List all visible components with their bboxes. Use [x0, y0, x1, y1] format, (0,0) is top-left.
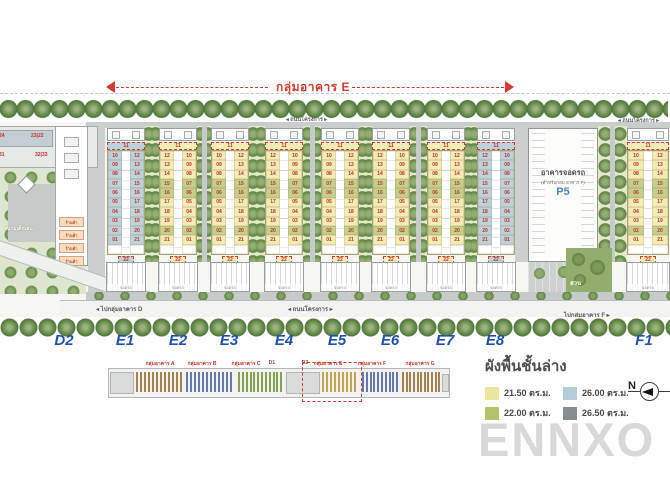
minimap-bar	[417, 372, 419, 392]
roof-unit	[164, 131, 172, 139]
lobby-room	[64, 137, 79, 147]
unit-cell: 21	[373, 235, 387, 244]
unit-cell: 13	[160, 160, 174, 169]
minimap-bar	[257, 372, 259, 392]
compass-needle-icon	[642, 388, 653, 396]
minimap-facility-left	[110, 372, 134, 394]
drive-lane	[515, 126, 528, 262]
unit-cell: 10	[428, 151, 442, 160]
tree-corridor	[145, 126, 159, 262]
minimap-bar	[214, 372, 216, 392]
unit-cell: 10	[628, 151, 644, 160]
unit-cell: 12	[478, 151, 492, 160]
minimap-bar	[202, 372, 204, 392]
unit-cell: 21	[266, 235, 280, 244]
minimap-section-label: กลุ่มอาคาร B	[187, 360, 216, 368]
minimap-bar	[402, 372, 404, 392]
unit-number: 24	[0, 133, 5, 139]
group-marker-e2: E2	[169, 332, 187, 349]
unit-columns: 1213141516171819202110090807060504030201	[477, 150, 515, 255]
unit-cell: 16	[130, 188, 144, 197]
road-label-to-d: ◂ ไปกลุ่มอาคาร D	[96, 304, 142, 314]
strip-roof-block	[477, 128, 515, 141]
strip-roof-block	[627, 128, 669, 141]
unit-cell: 04	[212, 207, 226, 216]
unit-cell: 02	[212, 226, 226, 235]
unit-columns: 1009080706050403020112131415161718192021	[211, 150, 249, 255]
unit-cell: 20	[373, 226, 387, 235]
unit-cell-11: 11	[321, 142, 359, 150]
unit-cell: 01	[322, 235, 336, 244]
unit-cell: 15	[652, 179, 668, 188]
building-strip-e7: 1110090807060504030201121314151617181920…	[427, 128, 465, 264]
minimap-bar	[222, 372, 224, 392]
group-marker-d2: D2	[54, 332, 73, 349]
unit-cell: 20	[450, 226, 464, 235]
garage-label: จอดรถ	[321, 284, 359, 291]
unit-cell: 13	[266, 160, 280, 169]
unit-column-left: 10090807060504030201	[212, 151, 226, 254]
unit-cell: 12	[130, 151, 144, 160]
unit-cell: 13	[652, 160, 668, 169]
minimap-bar	[366, 372, 368, 392]
minimap-bar	[238, 372, 240, 392]
unit-cell: 05	[428, 198, 442, 207]
unit-column-right: 10090807060504030201	[395, 151, 409, 254]
unit-cell: 14	[450, 170, 464, 179]
minimap-bar	[206, 372, 208, 392]
unit-column-left: 10090807060504030201	[108, 151, 122, 254]
stair-cell	[395, 245, 409, 254]
unit-cell: 09	[288, 160, 302, 169]
unit-columns: 1009080706050403020112131415161718192021	[107, 150, 145, 255]
unit-cell: 19	[266, 217, 280, 226]
unit-cell: 06	[500, 188, 514, 197]
minimap-bar	[370, 372, 372, 392]
minimap-bar	[164, 372, 166, 392]
unit-cell: 15	[373, 179, 387, 188]
unit-column-right: 10090807060504030201	[500, 151, 514, 254]
minimap-bar	[392, 372, 394, 392]
unit-cell: 10	[108, 151, 122, 160]
garage-label: จอดรถ	[627, 284, 669, 291]
unit-cell: 14	[160, 170, 174, 179]
unit-cell: 19	[450, 217, 464, 226]
minimap-bar	[140, 372, 142, 392]
minimap-section-label: กลุ่มอาคาร F	[358, 360, 386, 368]
unit-number: 32|33	[35, 152, 48, 158]
unit-cell: 14	[266, 170, 280, 179]
tree-row-top	[0, 99, 668, 119]
minimap-bar	[381, 372, 383, 392]
unit-cell: 04	[428, 207, 442, 216]
minimap-bar	[226, 372, 228, 392]
unit-cell: 01	[628, 235, 644, 244]
unit-cell: 05	[212, 198, 226, 207]
unit-cell: 08	[108, 170, 122, 179]
unit-cell: 19	[373, 217, 387, 226]
unit-cell-11: 11	[265, 142, 303, 150]
sidewalk-trees	[86, 292, 670, 300]
garage-block-e4: จอดรถ	[264, 262, 304, 292]
minimap-bar	[420, 372, 422, 392]
minimap-bar	[273, 372, 275, 392]
corridor-spine	[387, 151, 395, 254]
minimap-bar	[377, 372, 379, 392]
unit-cell: 18	[652, 207, 668, 216]
unit-cell: 18	[450, 207, 464, 216]
minimap-section-label: กลุ่มอาคาร C	[231, 360, 260, 368]
unit-cell: 09	[182, 160, 196, 169]
minimap-bar	[438, 372, 440, 392]
unit-cell: 04	[628, 207, 644, 216]
minimap-bar	[152, 372, 154, 392]
unit-cell: 16	[478, 188, 492, 197]
unit-cell: 08	[500, 170, 514, 179]
unit-cell: 06	[212, 188, 226, 197]
minimap-bar	[385, 372, 387, 392]
unit-cell: 10	[182, 151, 196, 160]
shop-unit: ร้านค้า	[59, 230, 84, 240]
minimap-bar	[424, 372, 426, 392]
unit-cell: 14	[652, 170, 668, 179]
roof-unit	[502, 131, 510, 139]
corridor-spine	[280, 151, 288, 254]
strip-roof-block	[372, 128, 410, 141]
minimap-bar	[373, 372, 375, 392]
unit-cell: 01	[212, 235, 226, 244]
group-marker-e8: E8	[486, 332, 504, 349]
unit-cell: 17	[373, 198, 387, 207]
unit-column-left: 10090807060504030201	[428, 151, 442, 254]
unit-cell: 18	[478, 207, 492, 216]
minimap-bar	[194, 372, 196, 392]
playground-label: สนามเด็กเล่น	[4, 225, 33, 233]
unit-cell: 14	[344, 170, 358, 179]
arrowhead-right-icon	[505, 81, 514, 93]
minimap-section-label: กลุ่มอาคาร A	[145, 360, 174, 368]
strip-roof-block	[107, 128, 145, 141]
roof-unit	[397, 131, 405, 139]
unit-columns: 1213141516171819202110090807060504030201	[265, 150, 303, 255]
boundary-dashed-line	[0, 93, 670, 94]
unit-cell: 20	[652, 226, 668, 235]
unit-cell: 14	[478, 170, 492, 179]
minimap-bar	[435, 372, 437, 392]
unit-cell: 20	[130, 226, 144, 235]
minimap-bar	[186, 372, 188, 392]
minimap-bar	[250, 372, 252, 392]
unit-cell: 17	[450, 198, 464, 207]
unit-cell: 01	[182, 235, 196, 244]
stair-cell	[478, 245, 492, 254]
stair-cell	[212, 245, 226, 254]
unit-cell: 21	[450, 235, 464, 244]
building-strip-e1: 1110090807060504030201121314151617181920…	[107, 128, 145, 264]
unit-cell: 02	[182, 226, 196, 235]
unit-cell: 21	[160, 235, 174, 244]
group-marker-e5: E5	[328, 332, 346, 349]
minimap-bar	[253, 372, 255, 392]
lobby-room	[64, 169, 79, 179]
strip-roof-block	[265, 128, 303, 141]
unit-cell: 07	[395, 179, 409, 188]
minimap-bar	[144, 372, 146, 392]
minimap-bar	[242, 372, 244, 392]
unit-cell: 14	[130, 170, 144, 179]
unit-cell: 07	[288, 179, 302, 188]
unit-cell: 02	[395, 226, 409, 235]
garage-block-e6: จอดรถ	[371, 262, 411, 292]
unit-column-right: 12131415161718192021	[234, 151, 248, 254]
garage-block-e3: จอดรถ	[210, 262, 250, 292]
unit-cell: 03	[288, 217, 302, 226]
arrow-dash-right	[352, 87, 504, 88]
unit-cell: 19	[160, 217, 174, 226]
unit-cell: 05	[288, 198, 302, 207]
unit-cell: 03	[395, 217, 409, 226]
unit-cell: 16	[450, 188, 464, 197]
roof-unit	[112, 131, 120, 139]
unit-cell: 17	[130, 198, 144, 207]
plaza	[8, 184, 56, 242]
building-strip-e5: 1110090807060504030201121314151617181920…	[321, 128, 359, 264]
overview-minimap: กลุ่มอาคาร Aกลุ่มอาคาร Bกลุ่มอาคาร CD1D2…	[106, 360, 452, 406]
unit-cell: 21	[478, 235, 492, 244]
unit-cell: 13	[373, 160, 387, 169]
unit-cell: 06	[108, 188, 122, 197]
unit-cell: 17	[478, 198, 492, 207]
legend-title: ผังพื้นชั้นล่าง	[485, 354, 645, 378]
minimap-highlight-box	[302, 362, 362, 402]
unit-cell: 03	[182, 217, 196, 226]
corridor-spine	[174, 151, 182, 254]
arrowhead-left-icon	[106, 81, 115, 93]
plan-area: สนามเด็กเล่น 2423|2221|203132|3334 ร้านค…	[0, 122, 670, 318]
unit-cell: 02	[108, 226, 122, 235]
unit-cell: 12	[234, 151, 248, 160]
garage-label: จอดรถ	[107, 284, 145, 291]
drive-lane	[202, 126, 207, 262]
unit-cell: 09	[395, 160, 409, 169]
unit-cell: 12	[450, 151, 464, 160]
minimap-bar	[261, 372, 263, 392]
stair-cell	[288, 245, 302, 254]
tree-corridor	[197, 126, 211, 262]
minimap-bar	[172, 372, 174, 392]
corridor-spine	[492, 151, 500, 254]
unit-columns: 1213141516171819202110090807060504030201	[372, 150, 410, 255]
unit-cell: 08	[182, 170, 196, 179]
garage-label: จอดรถ	[427, 284, 465, 291]
garage-block-e2: จอดรถ	[158, 262, 198, 292]
unit-column-right: 12131415161718192021	[652, 151, 668, 254]
unit-cell: 20	[266, 226, 280, 235]
unit-cell-11: 11	[627, 142, 669, 150]
minimap-bar	[160, 372, 162, 392]
unit-cell: 16	[344, 188, 358, 197]
group-marker-e6: E6	[381, 332, 399, 349]
unit-columns: 1009080706050403020112131415161718192021	[321, 150, 359, 255]
garage-label: จอดรถ	[211, 284, 249, 291]
unit-cell: 02	[288, 226, 302, 235]
unit-cell: 10	[395, 151, 409, 160]
swatch-21-50	[485, 387, 499, 400]
unit-cell: 13	[478, 160, 492, 169]
unit-cell: 13	[130, 160, 144, 169]
minimap-bar	[246, 372, 248, 392]
unit-cell: 09	[108, 160, 122, 169]
tree-corridor	[410, 126, 427, 262]
garage-label: จอดรถ	[265, 284, 303, 291]
unit-cell-11: 11	[159, 142, 197, 150]
unit-cell: 15	[344, 179, 358, 188]
minimap-section-label: กลุ่มอาคาร G	[405, 360, 434, 368]
unit-cell: 16	[160, 188, 174, 197]
unit-cell: 09	[628, 160, 644, 169]
building-strip-e6: 1112131415161718192021100908070605040302…	[372, 128, 410, 264]
garden-park: สวน	[566, 248, 612, 294]
unit-cell: 01	[395, 235, 409, 244]
minimap-bar	[156, 372, 158, 392]
stair-cell	[234, 245, 248, 254]
tree-corridor	[598, 126, 627, 262]
unit-cell: 20	[234, 226, 248, 235]
parking-building-p5: อาคารจอดรถ (สำหรับกลุ่ม อาคาร F) P5	[528, 128, 598, 262]
stair-cell	[108, 245, 122, 254]
unit-cell: 12	[160, 151, 174, 160]
unit-column-left: 12131415161718192021	[373, 151, 387, 254]
tree-corridor	[465, 126, 477, 262]
site-plan-canvas: กลุ่มอาคาร E ◂ ถนนโครงการ ▸ ◂ ถนนโครงการ…	[0, 0, 670, 482]
minimap-bar	[176, 372, 178, 392]
unit-cell: 19	[652, 217, 668, 226]
unit-cell: 07	[500, 179, 514, 188]
unit-cell: 18	[344, 207, 358, 216]
unit-column-left: 10090807060504030201	[628, 151, 644, 254]
unit-cell: 04	[108, 207, 122, 216]
minimap-bar	[180, 372, 182, 392]
minimap-bar	[280, 372, 282, 392]
road-label-project: ◂ ถนนโครงการ ▸	[288, 304, 333, 314]
unit-cell: 18	[130, 207, 144, 216]
roof-unit	[377, 131, 385, 139]
unit-cell: 16	[234, 188, 248, 197]
compass-north-label: N	[628, 380, 636, 392]
stair-cell	[322, 245, 336, 254]
unit-cell: 07	[212, 179, 226, 188]
minimap-bar	[198, 372, 200, 392]
unit-cell: 12	[344, 151, 358, 160]
strip-roof-block	[159, 128, 197, 141]
unit-cell: 10	[212, 151, 226, 160]
garage-block-e1: จอดรถ	[106, 262, 146, 292]
minimap-bar	[218, 372, 220, 392]
unit-cell: 21	[652, 235, 668, 244]
minimap-bar	[210, 372, 212, 392]
minimap-facility-right	[442, 374, 449, 392]
minimap-bar	[427, 372, 429, 392]
unit-cell: 04	[395, 207, 409, 216]
minimap-bar	[168, 372, 170, 392]
unit-cell: 18	[160, 207, 174, 216]
unit-cell-11: 11	[477, 142, 515, 150]
strip-roof-block	[427, 128, 465, 141]
corridor-spine	[644, 151, 652, 254]
unit-cell: 21	[130, 235, 144, 244]
unit-cell: 10	[322, 151, 336, 160]
unit-cell: 14	[234, 170, 248, 179]
park-label: สวน	[570, 278, 581, 288]
unit-cell: 17	[160, 198, 174, 207]
stair-cell	[130, 245, 144, 254]
unit-cell: 08	[428, 170, 442, 179]
unit-cell: 04	[288, 207, 302, 216]
unit-cell: 05	[182, 198, 196, 207]
unit-cell: 09	[212, 160, 226, 169]
unit-column-right: 10090807060504030201	[182, 151, 196, 254]
minimap-bar	[406, 372, 408, 392]
unit-cell: 06	[628, 188, 644, 197]
unit-cell: 13	[344, 160, 358, 169]
unit-cell: 19	[234, 217, 248, 226]
unit-cell: 20	[478, 226, 492, 235]
stair-cell	[652, 245, 668, 254]
garage-block-f1: จอดรถ	[626, 262, 670, 292]
unit-cell: 18	[266, 207, 280, 216]
drive-lane	[610, 126, 615, 262]
roof-unit	[132, 131, 140, 139]
minimap-bar	[396, 372, 398, 392]
unit-cell: 03	[108, 217, 122, 226]
corridor-spine	[336, 151, 344, 254]
unit-cell: 15	[450, 179, 464, 188]
unit-cell: 06	[395, 188, 409, 197]
unit-cell-11: 11	[372, 142, 410, 150]
unit-cell: 12	[373, 151, 387, 160]
unit-cell: 08	[212, 170, 226, 179]
unit-cell: 03	[212, 217, 226, 226]
unit-cell: 16	[652, 188, 668, 197]
unit-cell: 18	[373, 207, 387, 216]
unit-cell: 15	[130, 179, 144, 188]
unit-cell: 01	[288, 235, 302, 244]
stair-cell	[500, 245, 514, 254]
group-e-label: กลุ่มอาคาร E	[276, 78, 350, 97]
unit-cell: 06	[322, 188, 336, 197]
unit-cell: 17	[652, 198, 668, 207]
unit-cell: 19	[130, 217, 144, 226]
unit-cell: 20	[160, 226, 174, 235]
roof-unit	[656, 131, 664, 139]
roof-unit	[326, 131, 334, 139]
parking-title: อาคารจอดรถ	[529, 167, 597, 179]
group-marker-f1: F1	[635, 332, 653, 349]
unit-cell: 21	[344, 235, 358, 244]
unit-cell: 05	[395, 198, 409, 207]
unit-cell: 02	[428, 226, 442, 235]
unit-columns: 1009080706050403020112131415161718192021	[627, 150, 669, 255]
building-strip-f1: 1110090807060504030201121314151617181920…	[627, 128, 669, 264]
unit-columns: 1213141516171819202110090807060504030201	[159, 150, 197, 255]
unit-cell: 02	[628, 226, 644, 235]
minimap-bar	[362, 372, 364, 392]
unit-cell: 01	[108, 235, 122, 244]
unit-cell: 07	[108, 179, 122, 188]
tree-corridor	[303, 126, 321, 262]
group-marker-e4: E4	[275, 332, 293, 349]
roof-unit	[184, 131, 192, 139]
